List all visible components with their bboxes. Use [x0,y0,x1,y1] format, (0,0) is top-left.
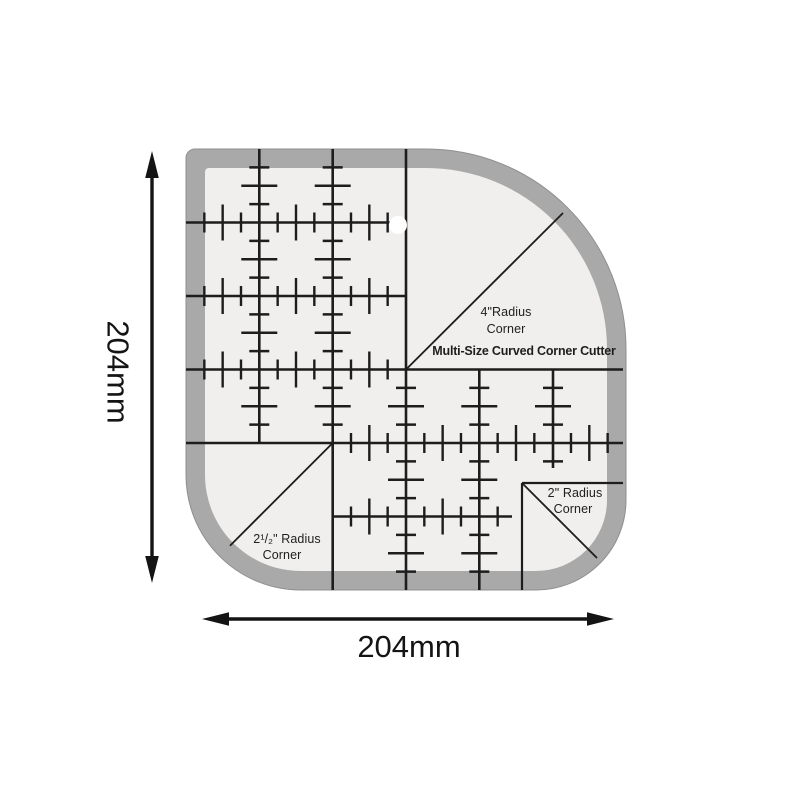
height-dimension-label: 204mm [101,320,136,423]
corner-2half-radius-label-line1: 2¹/₂" Radius [253,532,320,546]
width-dimension: 204mm [202,612,614,664]
height-arrow-head-top [145,151,159,178]
corner-2half-radius-label-line2: Corner [263,548,302,562]
corner-2-radius-label-line1: 2" Radius [548,486,603,500]
width-arrow-head-right [587,612,614,626]
corner-cutter-ruler-graphic: 4"Radius Corner Multi-Size Curved Corner… [0,0,800,800]
brand-label: Multi-Size Curved Corner Cutter [432,344,616,358]
corner-4-radius-label-line2: Corner [487,322,526,336]
height-arrow-head-bottom [145,556,159,583]
width-dimension-label: 204mm [357,629,460,664]
height-dimension: 204mm [101,151,159,583]
width-arrow-head-left [202,612,229,626]
corner-2-radius-label-line2: Corner [554,502,593,516]
product-photo: 4"Radius Corner Multi-Size Curved Corner… [0,0,800,800]
hanging-hole [389,216,407,234]
corner-4-radius-label-line1: 4"Radius [480,305,531,319]
